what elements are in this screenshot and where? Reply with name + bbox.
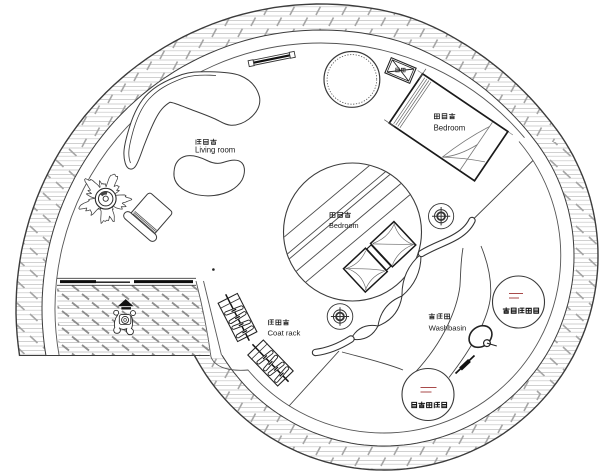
svg-text:Living room: Living room xyxy=(195,146,235,155)
svg-text:Coat rack: Coat rack xyxy=(268,329,301,338)
svg-text:Washbasin: Washbasin xyxy=(429,324,467,333)
svg-text:Bedroom: Bedroom xyxy=(329,221,359,230)
svg-text:Bedroom: Bedroom xyxy=(434,124,466,133)
